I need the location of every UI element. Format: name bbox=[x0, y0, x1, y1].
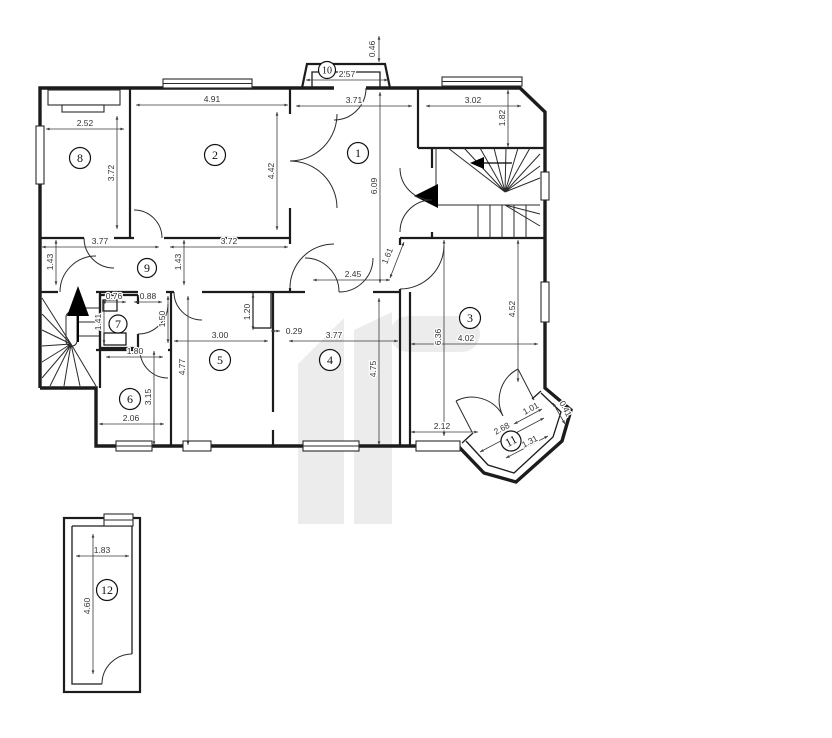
svg-text:1.82: 1.82 bbox=[497, 109, 507, 126]
svg-text:4.52: 4.52 bbox=[507, 300, 517, 317]
svg-text:6.36: 6.36 bbox=[433, 328, 443, 345]
window-room8-top-inner bbox=[62, 105, 104, 112]
windows bbox=[36, 77, 549, 451]
svg-text:1: 1 bbox=[355, 146, 361, 160]
svg-text:1.50: 1.50 bbox=[157, 310, 167, 327]
dim-room8-height: 3.72 bbox=[106, 116, 117, 229]
dim-room5-nook-depth: 1.20 bbox=[242, 294, 253, 330]
door-room12 bbox=[102, 654, 132, 684]
svg-text:1.20: 1.20 bbox=[242, 303, 252, 320]
dim-room12-width: 1.83 bbox=[76, 545, 129, 556]
room-label-5: 5 bbox=[210, 350, 231, 371]
room-label-7: 7 bbox=[109, 315, 127, 333]
svg-text:2.12: 2.12 bbox=[434, 421, 451, 431]
svg-text:5: 5 bbox=[217, 353, 223, 367]
dim-room8-width: 2.52 bbox=[46, 118, 124, 129]
svg-text:0.29: 0.29 bbox=[286, 326, 303, 336]
dim-room3-height-right: 4.52 bbox=[507, 240, 518, 382]
window-room8-top bbox=[48, 90, 120, 105]
svg-text:3.15: 3.15 bbox=[143, 388, 153, 405]
svg-text:9: 9 bbox=[144, 261, 150, 275]
svg-text:3.02: 3.02 bbox=[465, 95, 482, 105]
svg-text:3.71: 3.71 bbox=[346, 95, 363, 105]
door-bay11-double bbox=[456, 369, 534, 432]
door-room3 bbox=[400, 245, 444, 289]
room-label-12: 12 bbox=[97, 580, 118, 601]
dim-room1-width: 3.71 bbox=[296, 95, 412, 106]
room-label-8: 8 bbox=[70, 148, 91, 169]
window-room8-left bbox=[36, 126, 44, 184]
room-label-9: 9 bbox=[138, 259, 157, 278]
floor-plan-drawing: 2.52 3.72 4.91 4.42 2.57 0.46 3.71 6.09 … bbox=[0, 0, 832, 738]
room-label-6: 6 bbox=[120, 389, 141, 410]
stair-direction-arrow bbox=[414, 184, 438, 208]
room-label-1: 1 bbox=[348, 143, 369, 164]
dim-room3-height-left: 6.36 bbox=[433, 240, 444, 436]
staircase-left bbox=[42, 286, 100, 386]
room-label-10: 10 bbox=[319, 62, 336, 79]
door-stair-right-double bbox=[400, 168, 432, 232]
room-label-4: 4 bbox=[320, 350, 341, 371]
svg-text:1.31: 1.31 bbox=[520, 433, 540, 450]
svg-text:2.06: 2.06 bbox=[123, 413, 140, 423]
window-room3-right bbox=[541, 282, 549, 322]
svg-text:3.77: 3.77 bbox=[326, 330, 343, 340]
svg-text:3: 3 bbox=[467, 311, 473, 325]
svg-text:7: 7 bbox=[115, 317, 121, 331]
svg-text:2.52: 2.52 bbox=[77, 118, 94, 128]
floor-plan-page: 2.52 3.72 4.91 4.42 2.57 0.46 3.71 6.09 … bbox=[0, 0, 832, 738]
svg-text:10: 10 bbox=[322, 66, 332, 77]
window-room4-bottom bbox=[416, 441, 460, 451]
svg-text:4.60: 4.60 bbox=[82, 597, 92, 614]
dim-balcony11-side: 1.01 bbox=[514, 400, 542, 424]
svg-text:1.83: 1.83 bbox=[94, 545, 111, 555]
svg-text:0.46: 0.46 bbox=[367, 40, 377, 57]
svg-text:4.42: 4.42 bbox=[266, 162, 276, 179]
svg-text:3.77: 3.77 bbox=[92, 236, 109, 246]
room-label-3: 3 bbox=[460, 308, 481, 329]
svg-text:6: 6 bbox=[127, 392, 133, 406]
svg-text:2: 2 bbox=[212, 148, 218, 162]
svg-text:4: 4 bbox=[327, 353, 333, 367]
svg-text:1.01: 1.01 bbox=[521, 400, 541, 417]
dim-room5-height: 4.77 bbox=[177, 296, 188, 445]
svg-text:12: 12 bbox=[101, 583, 113, 597]
dim-room5-nook-offset: 0.29 bbox=[271, 326, 303, 336]
stair-up-arrow bbox=[67, 286, 89, 316]
svg-text:4.91: 4.91 bbox=[204, 94, 221, 104]
dim-room2-height: 4.42 bbox=[266, 112, 277, 230]
door-hall-double bbox=[305, 258, 373, 292]
dim-room2-width: 4.91 bbox=[136, 94, 288, 105]
svg-text:3.72: 3.72 bbox=[221, 236, 238, 246]
svg-text:2.57: 2.57 bbox=[339, 69, 356, 79]
svg-text:8: 8 bbox=[77, 151, 83, 165]
dim-landing-width: 3.02 bbox=[426, 95, 521, 106]
dim-room7-height-right: 1.50 bbox=[157, 296, 168, 343]
svg-text:1.43: 1.43 bbox=[45, 253, 55, 270]
svg-text:1.43: 1.43 bbox=[173, 253, 183, 270]
door-room2 bbox=[134, 210, 162, 238]
dim-balcony11-end: 0.41 bbox=[553, 399, 574, 424]
svg-text:1.80: 1.80 bbox=[127, 346, 144, 356]
window-room5-bottom-left bbox=[183, 441, 211, 451]
svg-text:1.61: 1.61 bbox=[379, 246, 395, 265]
door-swings bbox=[60, 88, 534, 432]
annex-room12 bbox=[64, 514, 140, 692]
dim-landing-height: 1.82 bbox=[497, 90, 508, 147]
svg-text:1.41: 1.41 bbox=[93, 313, 103, 330]
svg-text:4.77: 4.77 bbox=[177, 358, 187, 375]
dim-room12-height: 4.60 bbox=[82, 534, 93, 674]
svg-text:2.45: 2.45 bbox=[345, 269, 362, 279]
window-stair-right bbox=[541, 172, 549, 200]
dim-room1-height: 6.09 bbox=[369, 92, 380, 283]
svg-text:3.00: 3.00 bbox=[212, 330, 229, 340]
door-room1-double bbox=[290, 114, 337, 208]
room-label-2: 2 bbox=[205, 145, 226, 166]
dim-room3-bottom-width: 2.12 bbox=[411, 421, 478, 432]
svg-text:6.09: 6.09 bbox=[369, 177, 379, 194]
svg-text:4.02: 4.02 bbox=[458, 333, 475, 343]
svg-text:0.88: 0.88 bbox=[140, 291, 157, 301]
svg-text:3.72: 3.72 bbox=[106, 164, 116, 181]
dim-balcony10-depth: 0.46 bbox=[367, 36, 379, 62]
svg-text:4.75: 4.75 bbox=[368, 360, 378, 377]
svg-text:0.76: 0.76 bbox=[106, 291, 123, 301]
dim-hall-width: 2.45 bbox=[313, 269, 390, 280]
dim-hall-diag: 1.61 bbox=[379, 242, 404, 278]
dim-room7-height-left: 1.41 bbox=[93, 300, 104, 344]
sink-fixture bbox=[104, 333, 126, 345]
